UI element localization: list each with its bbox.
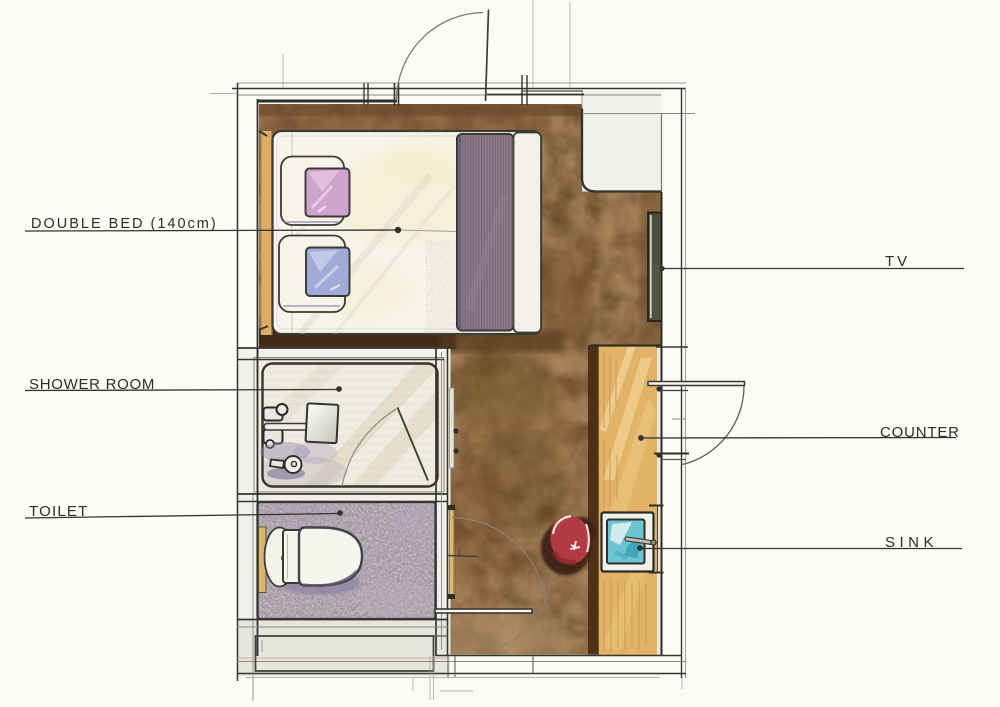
svg-text:TV: TV xyxy=(885,253,910,270)
svg-text:DOUBLE BED (140cm): DOUBLE BED (140cm) xyxy=(31,216,218,232)
svg-text:COUNTER: COUNTER xyxy=(880,424,960,441)
